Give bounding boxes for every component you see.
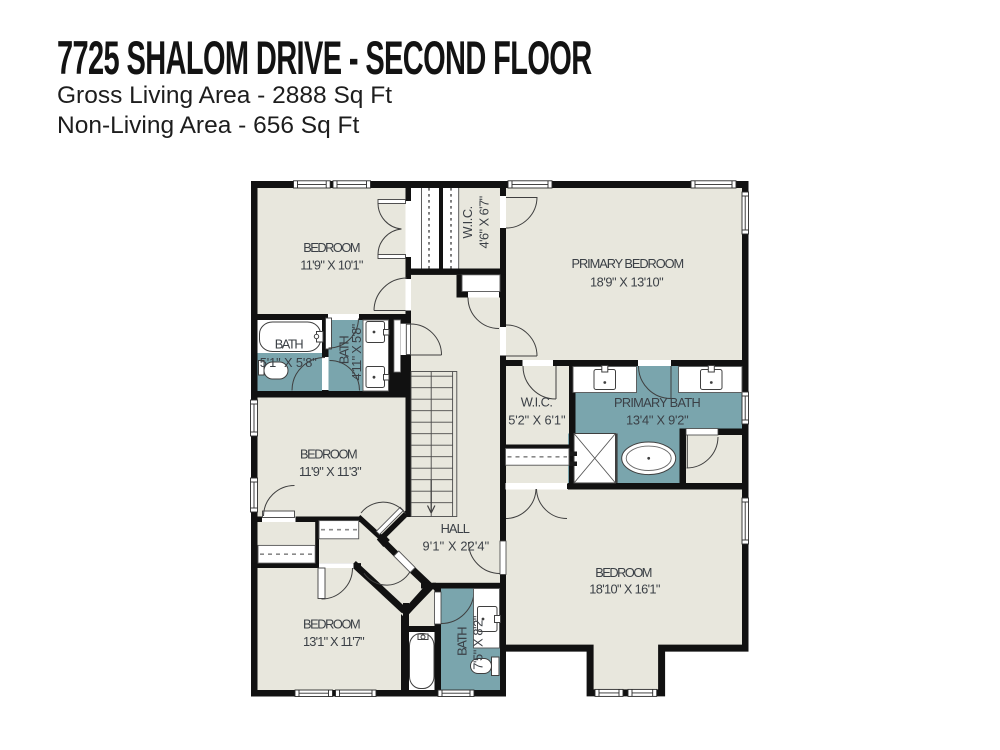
svg-text:PRIMARY BATH: PRIMARY BATH xyxy=(614,395,701,410)
svg-text:BEDROOM: BEDROOM xyxy=(303,240,361,255)
svg-text:18'9" X 13'10": 18'9" X 13'10" xyxy=(590,275,664,290)
svg-text:5'2" X 6'1": 5'2" X 6'1" xyxy=(508,412,566,427)
svg-text:13'1" X 11'7": 13'1" X 11'7" xyxy=(303,634,365,649)
svg-text:BEDROOM: BEDROOM xyxy=(300,447,358,462)
svg-text:W.I.C.: W.I.C. xyxy=(460,206,475,239)
svg-text:5'1" X 5'8": 5'1" X 5'8" xyxy=(260,355,317,370)
svg-text:4'6" X 6'7": 4'6" X 6'7" xyxy=(477,196,492,249)
svg-text:13'4" X 9'2": 13'4" X 9'2" xyxy=(626,413,689,428)
svg-text:HALL: HALL xyxy=(441,521,471,536)
svg-text:W.I.C.: W.I.C. xyxy=(521,395,553,410)
svg-text:BEDROOM: BEDROOM xyxy=(595,565,653,580)
svg-text:11'9" X 10'1": 11'9" X 10'1" xyxy=(300,258,364,273)
svg-text:BEDROOM: BEDROOM xyxy=(303,617,361,632)
svg-text:11'9" X 11'3": 11'9" X 11'3" xyxy=(299,464,362,479)
svg-text:BATH: BATH xyxy=(275,337,304,352)
svg-text:PRIMARY BEDROOM: PRIMARY BEDROOM xyxy=(572,256,685,271)
svg-text:9'1" X 22'4": 9'1" X 22'4" xyxy=(423,539,490,554)
svg-text:7'5" X 8'2": 7'5" X 8'2" xyxy=(471,615,486,670)
svg-text:BATH: BATH xyxy=(455,626,470,656)
svg-text:4'11" X 5'8": 4'11" X 5'8" xyxy=(349,324,364,381)
svg-text:18'10" X 16'1": 18'10" X 16'1" xyxy=(589,582,661,597)
